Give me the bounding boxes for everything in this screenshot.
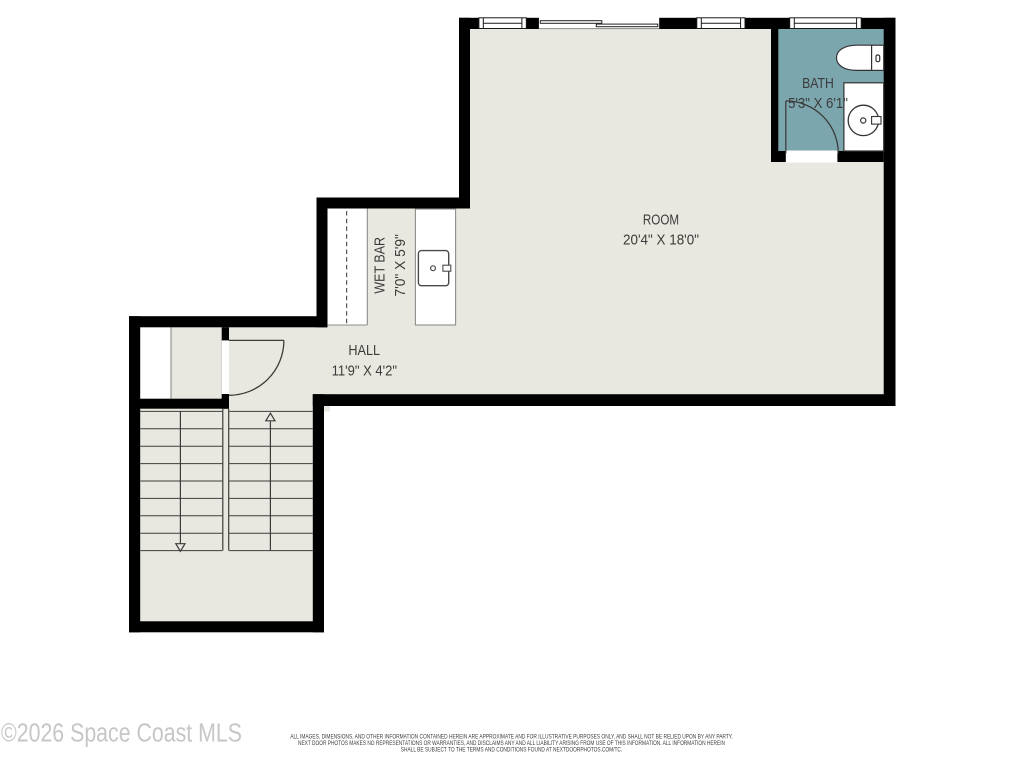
svg-text:BATH: BATH — [802, 76, 834, 92]
svg-text:7'0" X 5'9": 7'0" X 5'9" — [393, 234, 409, 297]
svg-text:HALL: HALL — [348, 343, 380, 359]
svg-text:ROOM: ROOM — [643, 213, 679, 229]
svg-text:5'3" X 6'1": 5'3" X 6'1" — [788, 96, 848, 112]
svg-text:WET BAR: WET BAR — [372, 237, 388, 294]
svg-text:©2026 Space Coast MLS: ©2026 Space Coast MLS — [1, 720, 242, 748]
svg-text:SHALL BE SUBJECT TO THE TERMS: SHALL BE SUBJECT TO THE TERMS AND CONDIT… — [401, 746, 623, 753]
svg-text:11'9" X 4'2": 11'9" X 4'2" — [332, 363, 397, 379]
svg-text:20'4" X 18'0": 20'4" X 18'0" — [623, 233, 699, 249]
